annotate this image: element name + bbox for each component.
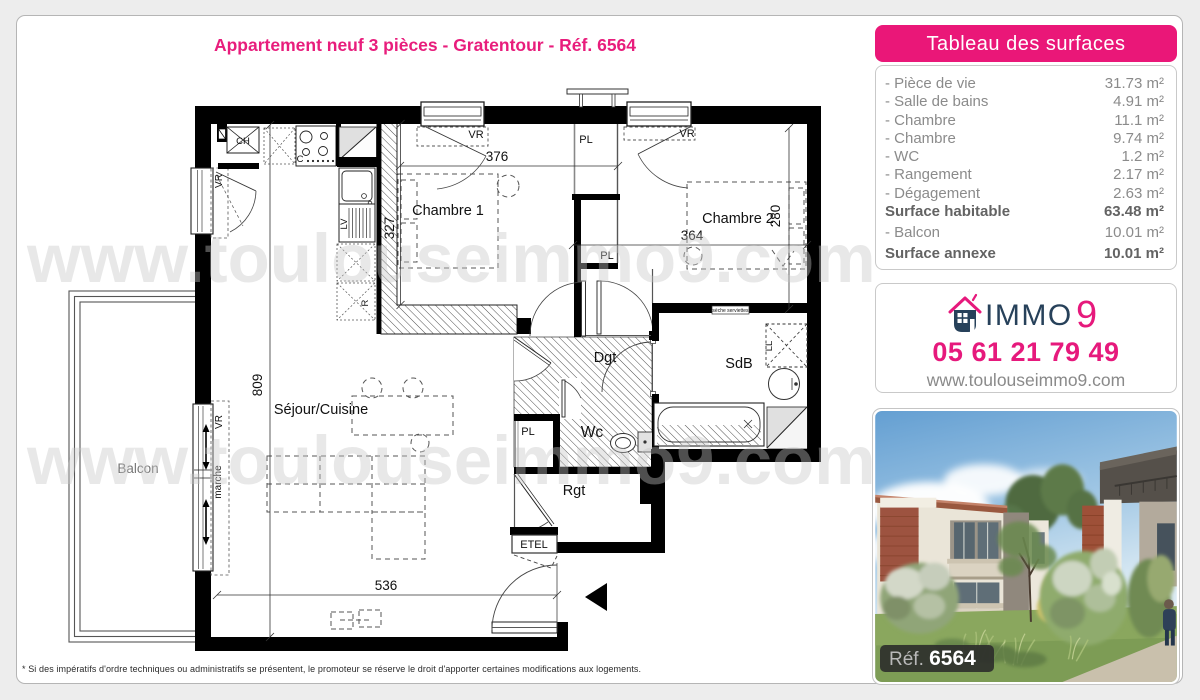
svg-text:Séjour/Cuisine: Séjour/Cuisine <box>274 402 368 418</box>
svg-text:PL: PL <box>579 134 592 146</box>
svg-text:SdB: SdB <box>725 356 752 372</box>
svg-text:376: 376 <box>486 149 509 164</box>
svg-text:Chambre 1: Chambre 1 <box>412 203 484 219</box>
svg-text:CH: CH <box>236 136 250 147</box>
svg-text:sèche serviettes: sèche serviettes <box>712 308 749 314</box>
svg-text:Dgt: Dgt <box>594 350 617 366</box>
svg-text:ETEL: ETEL <box>520 539 548 551</box>
svg-text:VR: VR <box>679 128 694 140</box>
svg-text:R: R <box>360 299 371 306</box>
svg-text:C: C <box>297 154 304 165</box>
svg-text:VR: VR <box>214 174 225 188</box>
svg-text:809: 809 <box>250 374 265 397</box>
svg-text:VR: VR <box>468 129 483 141</box>
svg-text:9: 9 <box>1076 294 1097 334</box>
svg-text:IMMO: IMMO <box>985 299 1073 332</box>
svg-text:536: 536 <box>375 578 398 593</box>
svg-text:LL: LL <box>764 341 775 352</box>
